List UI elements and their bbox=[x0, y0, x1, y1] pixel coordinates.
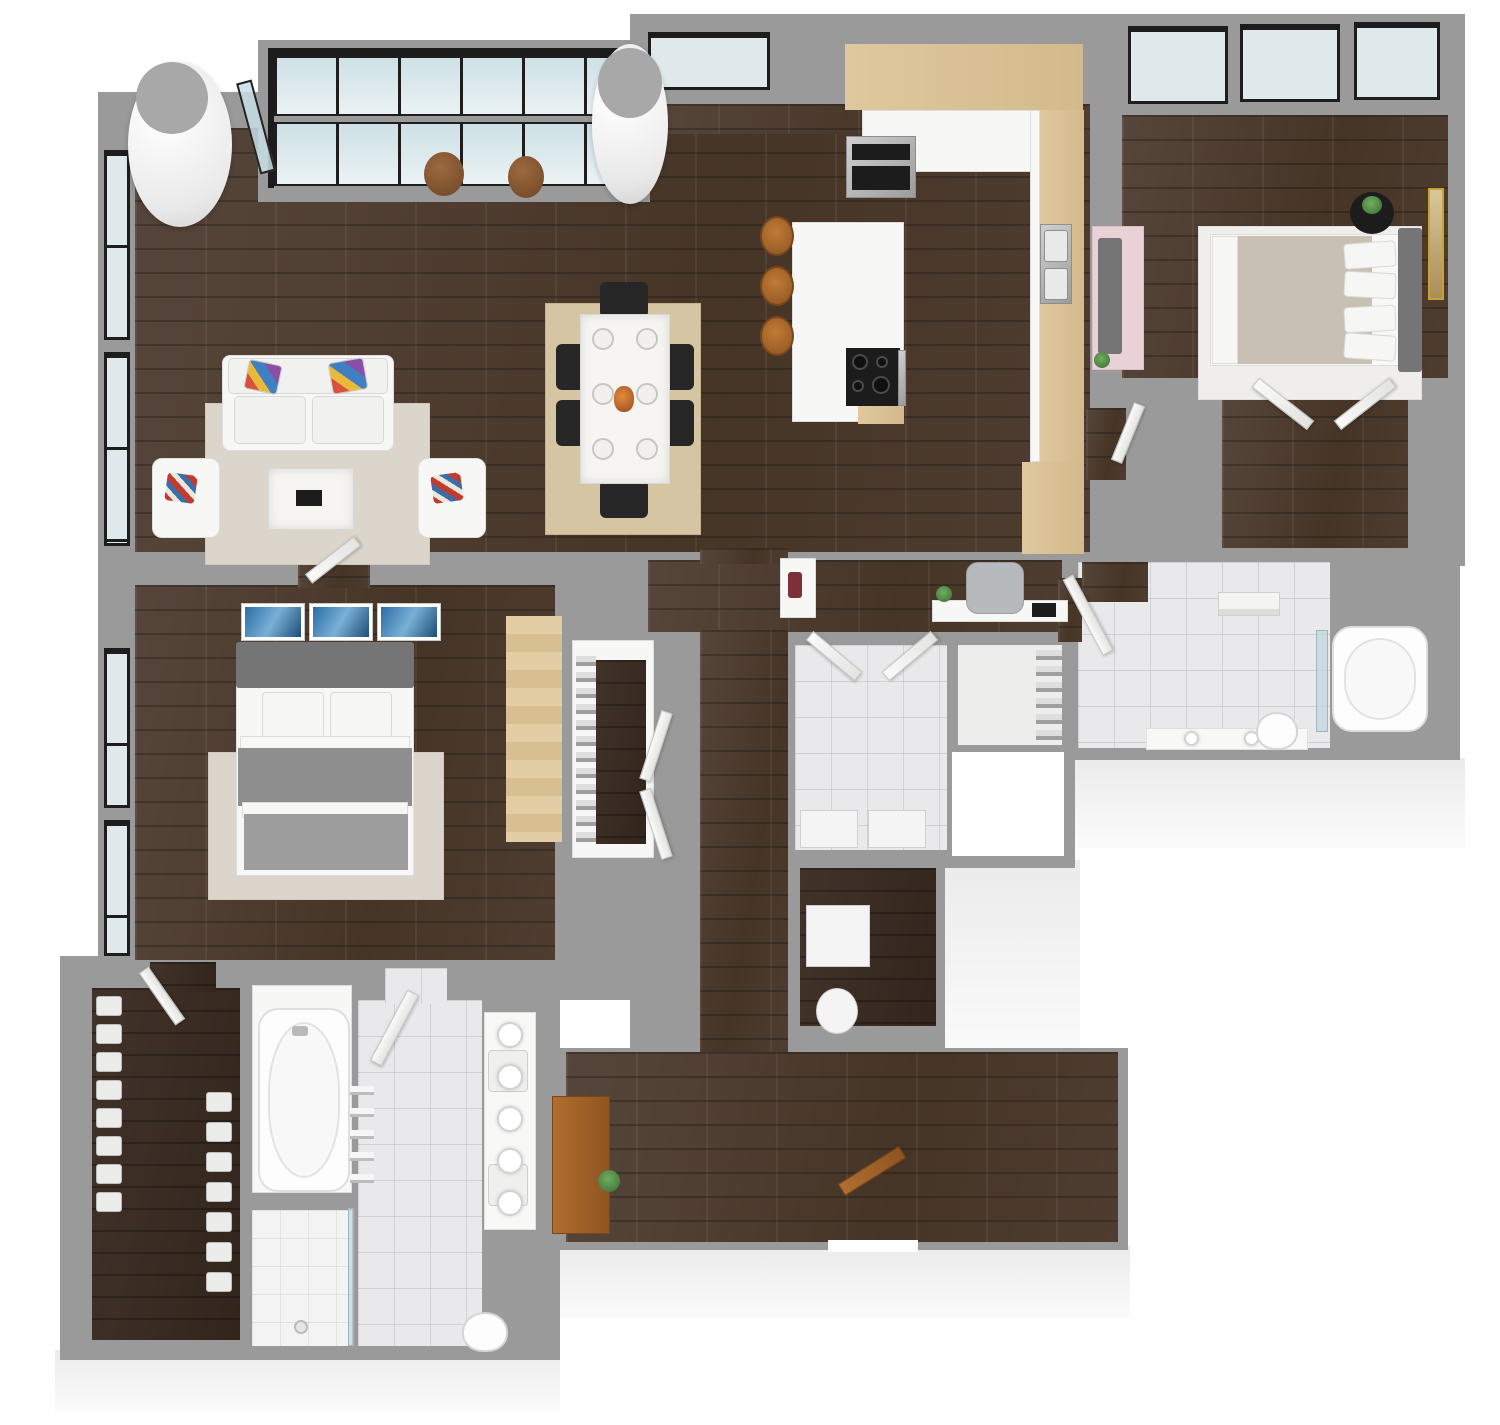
entry-cabinet bbox=[552, 1096, 610, 1234]
cooktop-burner-1 bbox=[852, 354, 868, 370]
powder-vanity bbox=[806, 905, 870, 967]
kitchen-oven-slot-1 bbox=[852, 144, 910, 160]
walkin-hangers-right-7 bbox=[206, 1272, 232, 1292]
kitchen-oven-slot-2 bbox=[852, 166, 910, 190]
window-master-2 bbox=[104, 820, 130, 956]
master-vanity-sinks-2 bbox=[497, 1064, 523, 1090]
kitchen-counter-edge bbox=[1030, 110, 1040, 462]
bar-stools-3 bbox=[760, 316, 794, 356]
cooktop-burner-2 bbox=[876, 356, 888, 368]
master-bed-duvet bbox=[238, 748, 412, 806]
walkin-hangers-left-4 bbox=[96, 1080, 122, 1100]
entry-plant bbox=[598, 1170, 620, 1192]
bath2-towel-rack bbox=[1218, 592, 1280, 616]
walkin-hangers-right-1 bbox=[206, 1092, 232, 1112]
master-vanity-sinks-4 bbox=[497, 1148, 523, 1174]
island-oven-handle bbox=[898, 350, 906, 406]
entry-door-opening bbox=[828, 1240, 918, 1252]
window-master-1 bbox=[104, 648, 130, 808]
bath2-toilet bbox=[1256, 712, 1298, 750]
master-vanity-sinks-3 bbox=[497, 1106, 523, 1132]
dining-plates-left-2 bbox=[592, 383, 614, 405]
hall-desk-chair bbox=[966, 562, 1024, 614]
floor-plan-canvas bbox=[0, 0, 1500, 1425]
walkin-hangers-left-7 bbox=[96, 1164, 122, 1184]
master-closet-shadow bbox=[596, 660, 646, 844]
master-art-3 bbox=[378, 604, 440, 640]
column-2-top bbox=[598, 48, 662, 118]
sofa-seat-2 bbox=[312, 396, 384, 444]
armchair-left-pillow bbox=[164, 472, 198, 504]
column-1-top bbox=[136, 62, 208, 134]
window-bedroom2-2 bbox=[1240, 24, 1340, 102]
window-living-1 bbox=[104, 150, 130, 340]
cooktop-burner-3 bbox=[852, 380, 864, 392]
dining-plates-right-1 bbox=[636, 328, 658, 350]
bath2-sink-1 bbox=[1184, 731, 1199, 746]
bedroom2-pillow-3 bbox=[1343, 305, 1396, 334]
master-tub-inner bbox=[268, 1022, 340, 1178]
hall-desk-plant bbox=[936, 586, 952, 602]
bedroom2-pillow-2 bbox=[1343, 271, 1396, 300]
dryer bbox=[868, 810, 926, 848]
bedroom2-nightstand-flowers bbox=[1362, 196, 1382, 214]
dining-chair-north bbox=[600, 282, 648, 318]
master-vanity-sinks-5 bbox=[497, 1190, 523, 1216]
kitchen-cabinet-top bbox=[845, 44, 1083, 110]
master-closet-hangers bbox=[576, 656, 596, 844]
dining-centerpiece bbox=[614, 386, 634, 412]
master-towel-ladder bbox=[350, 1086, 374, 1190]
bedroom2-headboard bbox=[1398, 228, 1422, 372]
master-art-2 bbox=[310, 604, 372, 640]
walkin-hangers-left-2 bbox=[96, 1024, 122, 1044]
floor-closet2 bbox=[1222, 392, 1408, 548]
floor-hall-vertical bbox=[700, 630, 788, 1060]
master-shower-glass bbox=[348, 1208, 354, 1346]
utility-shaft bbox=[952, 752, 1064, 856]
walkin-hangers-left-3 bbox=[96, 1052, 122, 1072]
walkin-hangers-left-6 bbox=[96, 1136, 122, 1156]
floor-entry bbox=[566, 1052, 1118, 1242]
walkin-hangers-right-6 bbox=[206, 1242, 232, 1262]
shoe-closet-shelf bbox=[1036, 650, 1062, 742]
walkin-hangers-left-8 bbox=[96, 1192, 122, 1212]
master-bed-pillow-2 bbox=[330, 692, 392, 738]
bedroom2-pillow-4 bbox=[1343, 332, 1397, 362]
dining-plates-right-2 bbox=[636, 383, 658, 405]
dining-plates-right-3 bbox=[636, 438, 658, 460]
walkin-hangers-right-5 bbox=[206, 1212, 232, 1232]
bedroom2-sheet bbox=[1212, 236, 1238, 364]
master-shower-drain bbox=[294, 1320, 308, 1334]
doorway-hall bbox=[700, 548, 788, 564]
hall-console-vase bbox=[788, 572, 802, 598]
master-bed-pillow-1 bbox=[262, 692, 324, 738]
powder-toilet bbox=[816, 988, 858, 1034]
master-vanity-sinks-1 bbox=[497, 1022, 523, 1048]
window-bedroom2-3 bbox=[1354, 22, 1440, 100]
walkin-hangers-left-5 bbox=[96, 1108, 122, 1128]
hall-desk-laptop bbox=[1032, 603, 1056, 617]
bar-stools-2 bbox=[760, 266, 794, 306]
balcony-planter-2 bbox=[508, 156, 544, 198]
balcony-railing bbox=[268, 48, 640, 56]
window-bedroom2-1 bbox=[1128, 26, 1228, 104]
exterior-skirt-powder-east bbox=[938, 860, 1080, 1058]
coffee-table-books bbox=[296, 490, 322, 506]
master-bed-headboard bbox=[236, 642, 414, 688]
kitchen-sink-bowl-2 bbox=[1044, 268, 1068, 300]
dining-chair-south bbox=[600, 480, 648, 518]
armchair-right-pillow bbox=[430, 472, 464, 504]
walkin-hangers-right-2 bbox=[206, 1122, 232, 1142]
sofa-seat-1 bbox=[234, 396, 306, 444]
exterior-skirt-entry bbox=[548, 1246, 1130, 1318]
bedroom2-desk bbox=[1098, 238, 1122, 354]
walkin-hangers-right-4 bbox=[206, 1182, 232, 1202]
washer bbox=[800, 810, 858, 848]
master-tub-faucet bbox=[292, 1026, 308, 1036]
master-wardrobe-panel bbox=[506, 616, 562, 842]
balcony-glass-upper bbox=[272, 56, 636, 116]
floor-bath2-wood-sliver bbox=[1082, 562, 1148, 602]
bath2-shower-glass bbox=[1316, 630, 1328, 732]
bedroom2-desk-plant bbox=[1094, 352, 1110, 368]
master-bed-duvet-foot bbox=[244, 814, 408, 870]
window-kitchen-north bbox=[648, 32, 770, 90]
dining-plates-left-3 bbox=[592, 438, 614, 460]
dining-plates-left-1 bbox=[592, 328, 614, 350]
balcony-planter-1 bbox=[424, 152, 464, 196]
bedroom2-art-gold bbox=[1428, 188, 1444, 300]
bar-stools-1 bbox=[760, 216, 794, 256]
walkin-hangers-right-3 bbox=[206, 1152, 232, 1172]
master-toilet bbox=[462, 1312, 508, 1352]
master-art-1 bbox=[242, 604, 304, 640]
bath2-tub-inner bbox=[1344, 638, 1416, 720]
kitchen-pantry bbox=[1022, 462, 1084, 554]
window-living-2 bbox=[104, 352, 130, 546]
kitchen-sink-bowl-1 bbox=[1044, 230, 1068, 262]
bedroom2-pillow-1 bbox=[1343, 240, 1397, 270]
cooktop-burner-4 bbox=[872, 376, 890, 394]
sofa-pillow-2 bbox=[327, 357, 368, 395]
walkin-hangers-left-1 bbox=[96, 996, 122, 1016]
